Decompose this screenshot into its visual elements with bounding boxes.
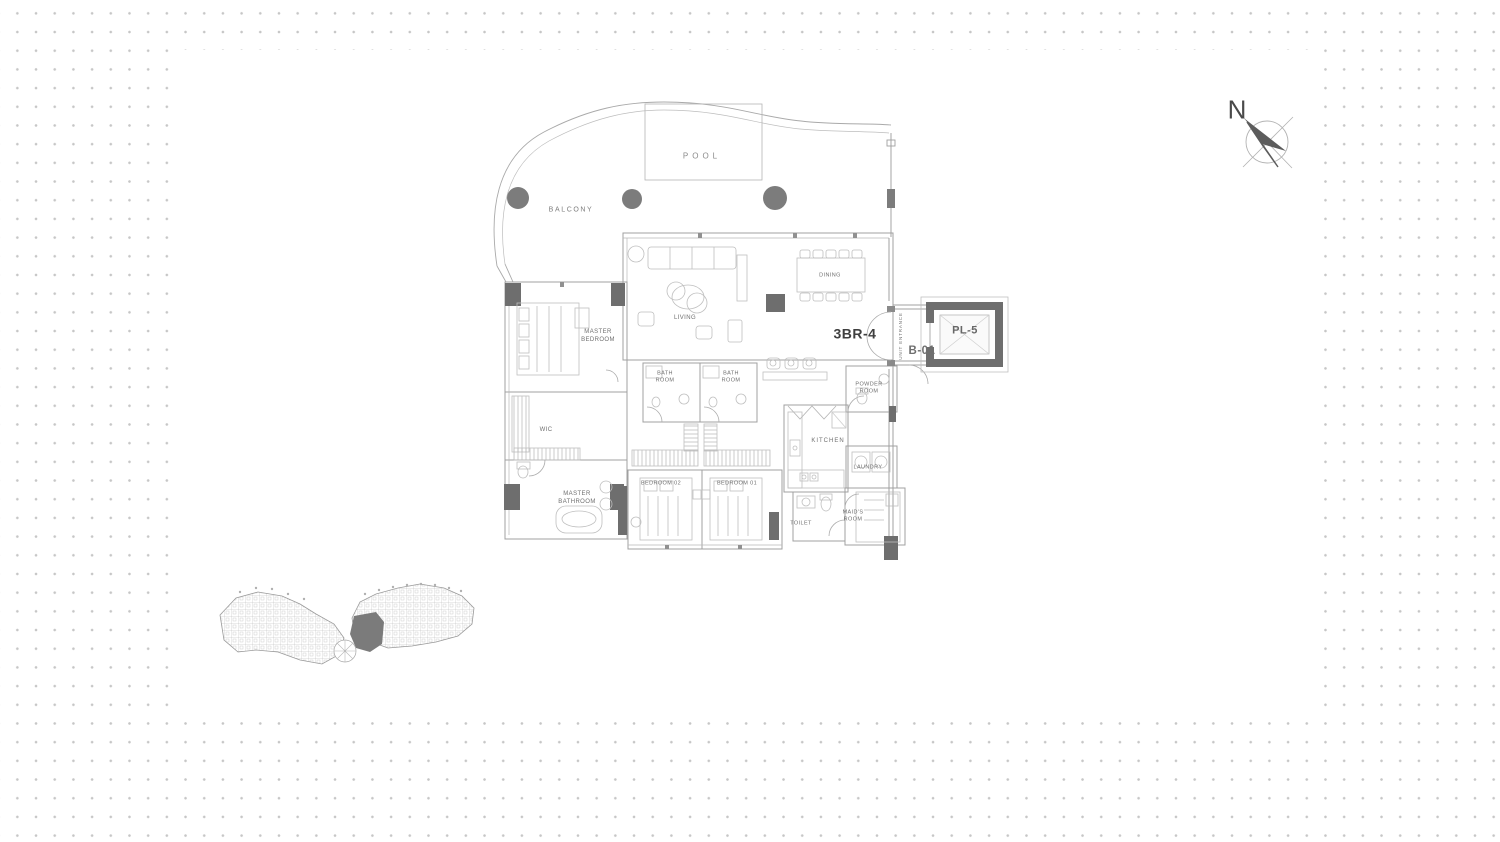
room-label-living: LIVING — [674, 314, 696, 322]
room-label-powder-room: POWDER ROOM — [855, 382, 882, 397]
north-compass-icon — [1242, 116, 1293, 168]
room-label-bath-room-a: BATH ROOM — [656, 371, 675, 386]
unit-entrance-label: UNIT ENTRANCE — [898, 312, 904, 360]
room-label-bedroom-02: BEDROOM 02 — [641, 480, 681, 487]
room-label-maids-room: MAID'S ROOM — [843, 510, 864, 525]
room-label-toilet: TOILET — [790, 520, 812, 527]
key-plan — [220, 583, 474, 664]
room-label-master-bathroom: MASTER BATHROOM — [558, 490, 595, 506]
lift-label: PL-5 — [952, 324, 978, 339]
room-label-balcony: BALCONY — [549, 205, 594, 214]
room-label-kitchen: KITCHEN — [811, 437, 844, 445]
floor-plan-drawing — [0, 0, 1500, 842]
unit-type-label: 3BR-4 — [834, 325, 877, 344]
room-label-master-bedroom: MASTER BEDROOM — [581, 328, 615, 344]
room-label-dining: DINING — [819, 272, 841, 279]
wall-poche — [504, 233, 898, 560]
room-label-bath-room-b: BATH ROOM — [722, 371, 741, 386]
room-label-laundry: LAUNDRY — [854, 464, 883, 471]
north-label: N — [1228, 92, 1247, 127]
balcony-outline — [494, 102, 895, 282]
room-label-bedroom-01: BEDROOM 01 — [717, 480, 757, 487]
lobby-label: B-01 — [909, 344, 936, 360]
floor-plan-page: POOL BALCONY LIVING DINING MASTER BEDROO… — [0, 0, 1500, 842]
room-label-pool: POOL — [683, 152, 721, 163]
room-label-wic: WIC — [540, 426, 553, 434]
